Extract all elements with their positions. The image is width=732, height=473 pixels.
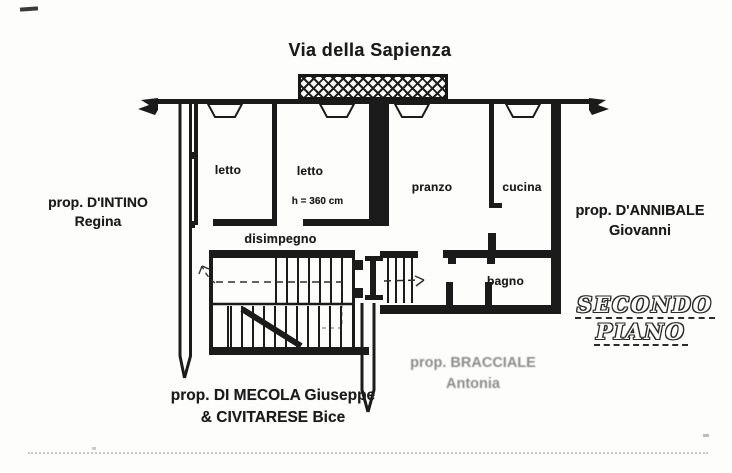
owner-south-line1: prop. DI MECOLA Giuseppe [148, 385, 398, 407]
scan-speck [703, 434, 709, 437]
bath-section-walls [380, 250, 561, 314]
entrance-door-jamb [355, 256, 383, 300]
owner-south-line2: & CIVITARESE Bice [148, 407, 398, 429]
scan-dotted-line [28, 452, 708, 454]
owner-south-label: prop. DI MECOLA Giuseppe & CIVITARESE Bi… [148, 385, 398, 430]
owner-west-line1: prop. D'INTINO [18, 193, 178, 212]
owner-south-east-line1: prop. BRACCIALE [388, 353, 558, 374]
floor-stamp-line1: SECONDO [575, 294, 715, 319]
room-bagno-label: bagno [478, 273, 533, 289]
room-pranzo-label: pranzo [402, 179, 462, 195]
owner-east-line1: prop. D'ANNIBALE [555, 202, 725, 222]
staircase [209, 250, 369, 355]
west-boundary-arrow [180, 104, 191, 378]
floor-stamp-line2: PIANO [594, 321, 687, 346]
street-name-label: Via della Sapienza [250, 38, 490, 62]
street-hatch-strip [298, 74, 448, 100]
room-letto-left-label: letto [200, 162, 256, 178]
owner-south-east-line2: Antonia [388, 374, 558, 395]
kitchen-walls [488, 104, 502, 252]
room-letto-right-label: letto [282, 163, 338, 179]
owner-west-label: prop. D'INTINO Regina [18, 193, 178, 231]
room-disimpegno-label: disimpegno [233, 231, 328, 248]
scan-speck [92, 447, 96, 450]
entry-steps [380, 251, 418, 303]
corridor-wall [209, 250, 355, 258]
owner-south-east-label: prop. BRACCIALE Antonia [388, 353, 558, 395]
ceiling-height-note: h = 360 cm [285, 195, 350, 209]
floor-plan-document: Via della Sapienza prop. D'INTINO Regina… [0, 0, 732, 473]
owner-east-label: prop. D'ANNIBALE Giovanni [555, 202, 725, 241]
floor-stamp: SECONDO PIANO [575, 294, 707, 346]
owner-east-line2: Giovanni [555, 222, 725, 242]
owner-west-line2: Regina [18, 212, 178, 231]
room-cucina-label: cucina [494, 179, 550, 195]
walk-line-arrows [199, 266, 424, 328]
